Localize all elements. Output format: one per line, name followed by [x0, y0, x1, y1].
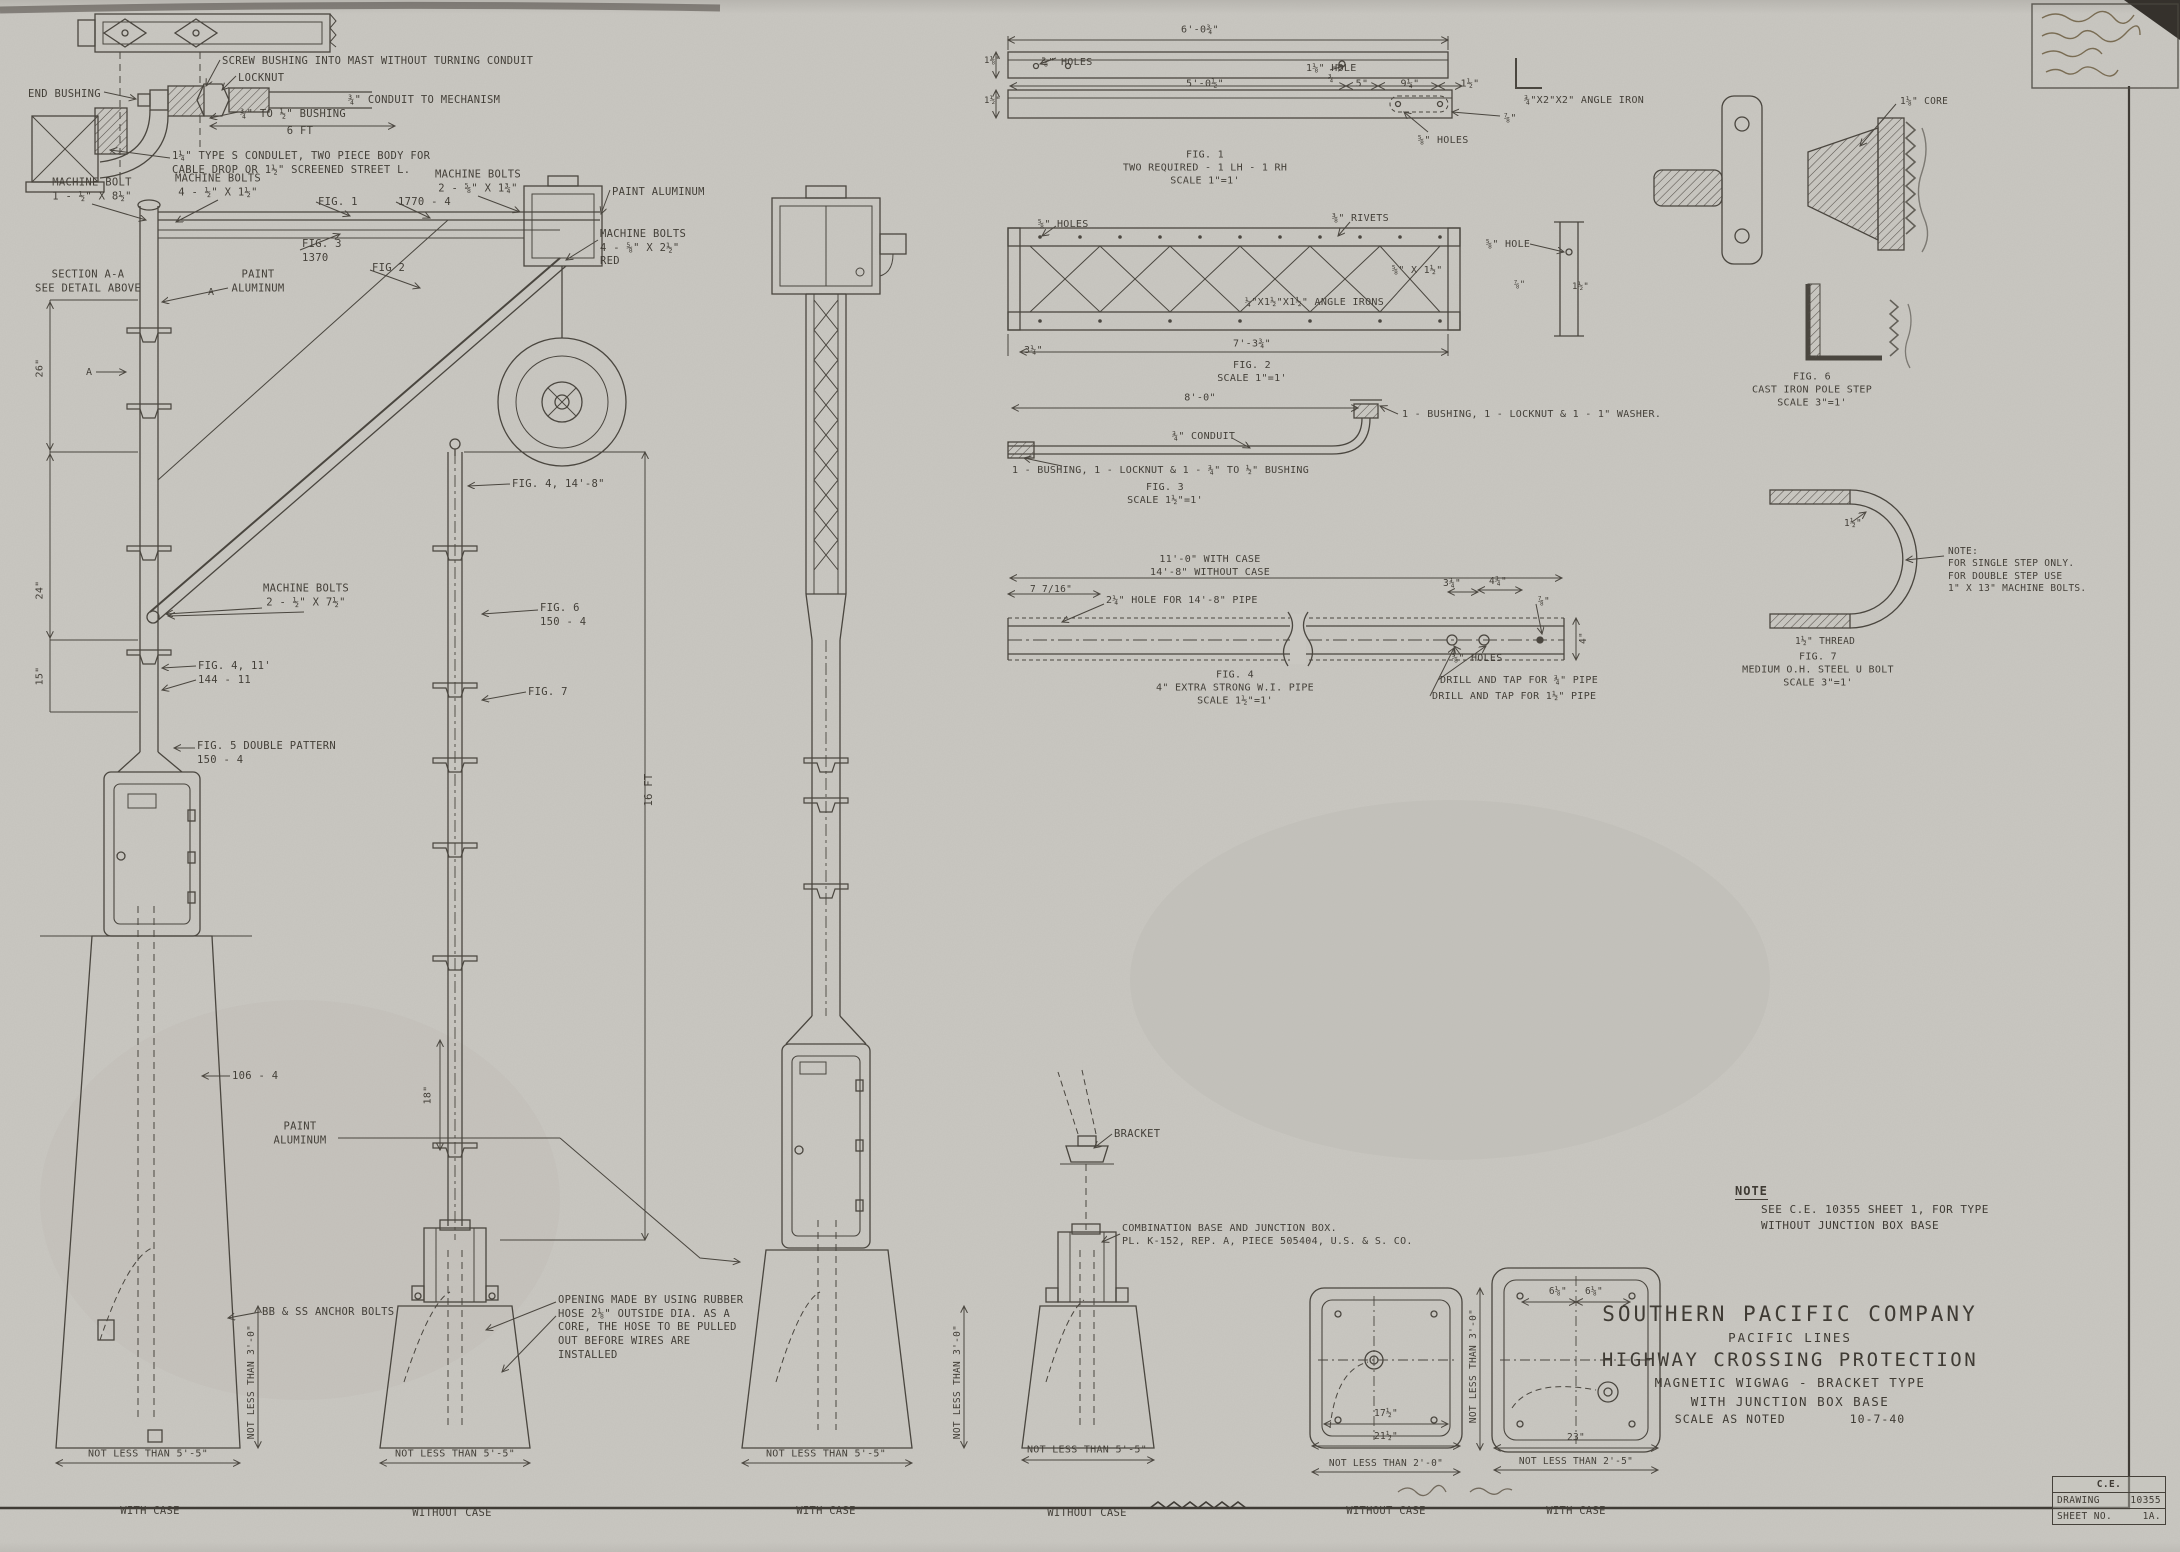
- label-paint-aluminum-arm: PAINT ALUMINUM: [612, 186, 705, 200]
- drawing-subtitle: MAGNETIC WIGWAG - BRACKET TYPE: [1655, 1375, 1926, 1390]
- fig4-drill-112: DRILL AND TAP FOR 1½" PIPE: [1432, 690, 1596, 703]
- fig1-angle-iron: ¾"X2"X2" ANGLE IRON: [1524, 94, 1644, 107]
- fig4-caption: FIG. 4 4" EXTRA STRONG W.I. PIPE SCALE 1…: [1156, 669, 1314, 708]
- fig3-fittings-left: 1 - BUSHING, 1 - LOCKNUT & 1 - ¾" TO ½" …: [1012, 464, 1309, 477]
- label-dim-16ft: 16 FT: [643, 773, 657, 806]
- label-1770-4: 1770 - 4: [398, 196, 451, 210]
- label-hose-note: OPENING MADE BY USING RUBBER HOSE 2⅛" OU…: [558, 1294, 743, 1362]
- fig6-core: 1⅛" CORE: [1900, 96, 1948, 108]
- label-fig6-ref: FIG. 6 150 - 4: [540, 602, 586, 629]
- label-without-case-2: WITHOUT CASE: [1047, 1507, 1126, 1521]
- label-section-aa: SECTION A-A SEE DETAIL ABOVE: [35, 268, 141, 295]
- fig1-dim-length: 6'-0¾": [1181, 24, 1219, 37]
- label-nlt-4: NOT LESS THAN 5'-5": [1027, 1444, 1147, 1457]
- label-fig2-ref: FIG 2: [372, 262, 405, 276]
- label-fig4-148: FIG. 4, 14'-8": [512, 478, 605, 492]
- label-nlt-2: NOT LESS THAN 5'-5": [395, 1448, 515, 1461]
- label-dim-24: 24": [34, 581, 47, 600]
- fig4-dim-78: ⅞": [1538, 596, 1550, 608]
- fig4-dim-716: 7 7/16": [1030, 584, 1072, 596]
- plan1-nlt: NOT LESS THAN 2'-0": [1329, 1458, 1443, 1470]
- fig2-rivets: ⅜" RIVETS: [1332, 212, 1389, 225]
- label-bracket: BRACKET: [1114, 1128, 1160, 1142]
- drawing-label: DRAWING: [2057, 1495, 2100, 1506]
- drawing-number-box: C.E. DRAWING 10355 SHEET NO. 1A.: [2052, 1476, 2166, 1525]
- fig4-hole-note: 2¼" HOLE FOR 14'-8" PIPE: [1106, 594, 1258, 607]
- fig7-note: NOTE: FOR SINGLE STEP ONLY. FOR DOUBLE S…: [1948, 546, 2086, 595]
- fig3-fittings-right: 1 - BUSHING, 1 - LOCKNUT & 1 - 1" WASHER…: [1402, 408, 1661, 421]
- fig7-caption: FIG. 7 MEDIUM O.H. STEEL U BOLT SCALE 3"…: [1742, 651, 1894, 690]
- scale-note: SCALE AS NOTED: [1675, 1412, 1786, 1426]
- fig2-angle-irons: ¼"X1½"X1½" ANGLE IRONS: [1245, 296, 1384, 309]
- fig1-dim-5012: 5'-0½": [1186, 78, 1224, 91]
- label-anchor-bolts: BB & SS ANCHOR BOLTS: [262, 1306, 394, 1320]
- note-line-2: WITHOUT JUNCTION BOX BASE: [1761, 1219, 1989, 1232]
- label-nlt-depth-2: NOT LESS THAN 3'-0": [952, 1325, 964, 1439]
- fig2-holes: ⅝" HOLES: [1038, 218, 1089, 231]
- fig7-dim-112: 1½": [1844, 518, 1862, 530]
- fig6-caption: FIG. 6 CAST IRON POLE STEP SCALE 3"=1': [1752, 371, 1872, 410]
- drawing-date: 10-7-40: [1850, 1412, 1905, 1426]
- label-nlt-depth-1: NOT LESS THAN 3'-0": [246, 1325, 258, 1439]
- label-dim-6ft: 6 FT: [287, 125, 314, 139]
- label-without-case-1: WITHOUT CASE: [412, 1507, 491, 1521]
- label-a-marker-2: A: [208, 286, 214, 299]
- fig1-dim-left2: 1½": [984, 96, 1001, 108]
- fig1-dim-914: 9¼": [1401, 78, 1420, 91]
- label-dim-15: 15": [34, 667, 47, 686]
- label-paint-aluminum-mast: PAINT ALUMINUM: [232, 268, 285, 295]
- label-with-case-2: WITH CASE: [796, 1505, 856, 1519]
- label-machine-bolts-red: MACHINE BOLTS 4 - ⅝" X 2½" RED: [600, 228, 686, 269]
- label-machine-bolt-8: MACHINE BOLT 1 - ½" X 8½": [52, 176, 131, 203]
- fig2-hole: ⅝" HOLE: [1486, 238, 1530, 251]
- label-machine-bolts-7: MACHINE BOLTS 2 - ½" X 7½": [263, 582, 349, 609]
- fig1-holes-right: ⅝" HOLES: [1418, 134, 1469, 147]
- label-nlt-1: NOT LESS THAN 5'-5": [88, 1448, 208, 1461]
- sheet-number: 1A.: [2143, 1511, 2161, 1522]
- drawing-title: HIGHWAY CROSSING PROTECTION: [1602, 1349, 1978, 1371]
- fig1-dim-112: 1½": [1461, 78, 1480, 91]
- drawing-number: 10355: [2130, 1495, 2161, 1506]
- fig3-caption: FIG. 3 SCALE 1½"=1': [1127, 481, 1203, 507]
- label-nlt-3: NOT LESS THAN 5'-5": [766, 1448, 886, 1461]
- note-line-1: SEE C.E. 10355 SHEET 1, FOR TYPE: [1761, 1203, 1989, 1216]
- fig1-dim-5: 5": [1356, 78, 1369, 91]
- fig2-dim-right-112: 1½": [1572, 282, 1589, 294]
- label-combination-base: COMBINATION BASE AND JUNCTION BOX. PL. K…: [1122, 1222, 1413, 1248]
- fig4-dim-4: 4": [1578, 632, 1590, 644]
- label-conduit-to-mechanism: ¾" CONDUIT TO MECHANISM: [348, 94, 500, 108]
- label-fig4-11: FIG. 4, 11' 144 - 11: [198, 660, 271, 687]
- label-fig1-ref: FIG. 1: [318, 196, 358, 210]
- fig1-dim-left1: 1⅛": [984, 56, 1001, 68]
- fig4-dim-334: 3¾": [1443, 578, 1461, 590]
- label-fig5-double: FIG. 5 DOUBLE PATTERN 150 - 4: [197, 740, 336, 767]
- label-with-case-1: WITH CASE: [120, 1505, 180, 1519]
- label-dim-18: 18": [422, 1086, 435, 1105]
- plan1-dim-2112: 21½": [1374, 1431, 1398, 1443]
- fig2-bar: ⅝" X 1½": [1392, 264, 1443, 277]
- division-name: PACIFIC LINES: [1728, 1330, 1852, 1345]
- label-locknut: LOCKNUT: [238, 72, 284, 86]
- plan2-dims-618: 6⅛" 6⅛": [1549, 1286, 1603, 1298]
- fig7-thread: 1½" THREAD: [1795, 636, 1855, 648]
- label-fig3-ref: FIG. 3 1370: [302, 238, 342, 265]
- drawing-subtitle-2: WITH JUNCTION BOX BASE: [1691, 1394, 1890, 1409]
- label-106-4: 106 - 4: [232, 1070, 278, 1084]
- label-machine-bolts-4: MACHINE BOLTS 4 - ½" X 1½": [175, 172, 261, 199]
- fig4-dim-434: 4¾": [1489, 576, 1507, 588]
- fig4-holes: ⅝" HOLES: [1452, 652, 1503, 665]
- fig1-dim-78: ⅞": [1504, 112, 1517, 125]
- company-name: SOUTHERN PACIFIC COMPANY: [1602, 1302, 1977, 1326]
- label-without-case-3: WITHOUT CASE: [1346, 1505, 1425, 1519]
- title-block: SOUTHERN PACIFIC COMPANY PACIFIC LINES H…: [1602, 1302, 1978, 1426]
- label-fig7-ref: FIG. 7: [528, 686, 568, 700]
- org-initials: C.E.: [2097, 1479, 2121, 1490]
- label-a-marker-1: A: [86, 366, 92, 379]
- label-with-case-3: WITH CASE: [1546, 1505, 1606, 1519]
- fig3-conduit: ¾" CONDUIT: [1172, 430, 1235, 443]
- sheet-label: SHEET NO.: [2057, 1511, 2112, 1522]
- label-screw-bushing: SCREW BUSHING INTO MAST WITHOUT TURNING …: [222, 55, 533, 69]
- fig2-dim-length: 7'-3¾": [1233, 338, 1271, 351]
- label-end-bushing: END BUSHING: [28, 88, 101, 102]
- label-paint-aluminum-case: PAINT ALUMINUM: [274, 1120, 327, 1147]
- label-machine-bolts-2: MACHINE BOLTS 2 - ⅝" X 1¾": [435, 168, 521, 195]
- plan2-dim-23: 23": [1567, 1432, 1585, 1444]
- fig2-dim-78: ⅞": [1514, 280, 1525, 292]
- fig2-caption: FIG. 2 SCALE 1"=1': [1217, 359, 1287, 385]
- note-heading: NOTE: [1735, 1184, 1768, 1200]
- fig1-holes-left: ⅝" HOLES: [1042, 56, 1093, 69]
- fig3-dim-length: 8'-0": [1184, 392, 1216, 405]
- fig4-dim-case: 11'-0" WITH CASE 14'-8" WITHOUT CASE: [1150, 553, 1270, 579]
- plan2-nlt: NOT LESS THAN 2'-5": [1519, 1456, 1633, 1468]
- note-block: NOTE SEE C.E. 10355 SHEET 1, FOR TYPE WI…: [1735, 1180, 1989, 1232]
- fig4-drill-34: DRILL AND TAP FOR ¾" PIPE: [1440, 674, 1598, 687]
- fig1-dim-34: ¾: [1328, 74, 1334, 86]
- fig2-dim-314: 3¼": [1024, 344, 1043, 357]
- label-bushing-size: ¾" TO ½" BUSHING: [240, 108, 346, 122]
- plan1-dim-1712: 17½": [1374, 1408, 1398, 1420]
- label-nlt-depth-3: NOT LESS THAN 3'-0": [1468, 1309, 1480, 1423]
- label-dim-26: 26": [34, 359, 47, 378]
- fig1-caption: FIG. 1 TWO REQUIRED - 1 LH - 1 RH SCALE …: [1123, 149, 1287, 188]
- blueprint-sheet: SCREW BUSHING INTO MAST WITHOUT TURNING …: [0, 0, 2180, 1552]
